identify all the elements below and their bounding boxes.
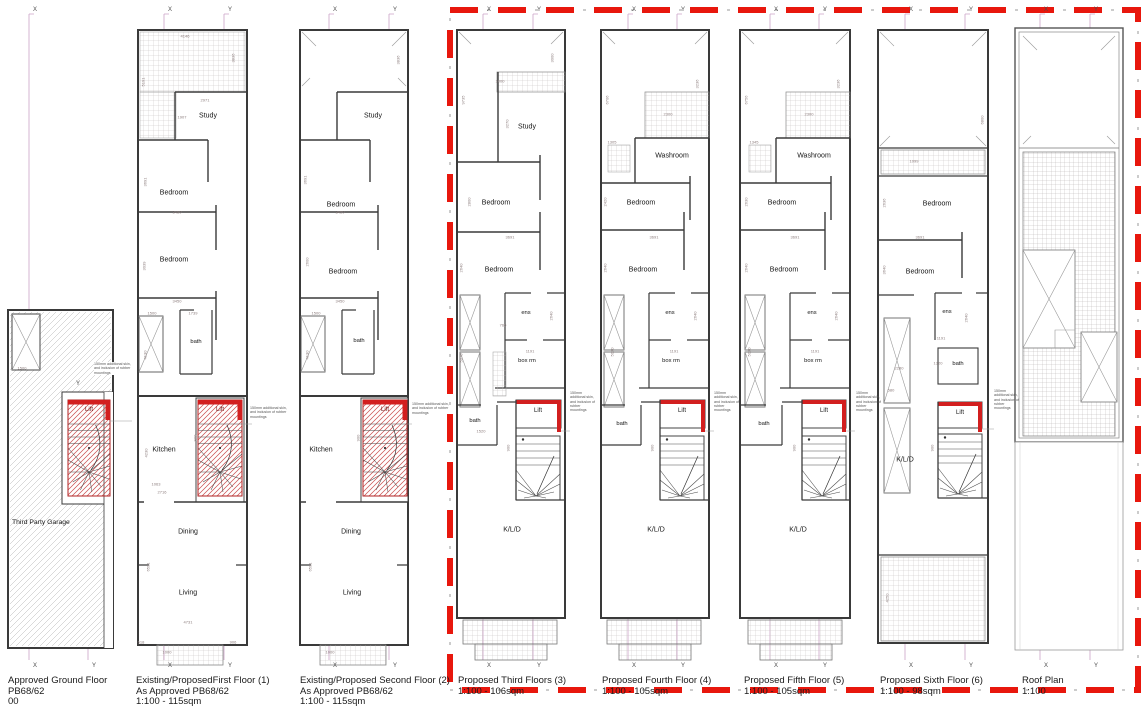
axis-label-x: X: [909, 663, 913, 669]
axis-label-x: X: [1044, 7, 1048, 13]
room-label-bath: bath: [190, 339, 201, 345]
room-label-lift: Lift: [956, 410, 964, 416]
room-label-kld: K/L/D: [896, 457, 914, 464]
plan-fourth-floor: [601, 30, 714, 660]
axis-label-x: X: [632, 7, 636, 13]
room-label-lift: Lift: [85, 407, 93, 413]
room-label-washroom: Washroom: [655, 153, 689, 160]
roof-terrace-hatch: [881, 557, 985, 641]
room-label-bedroom: Bedroom: [923, 201, 951, 208]
lift-box: [660, 400, 705, 428]
skin-note: 150mm additional skin, and inclusion of …: [250, 406, 290, 419]
caption-sixth-floor: Proposed Sixth Floor (6) 1:100 - 98sqm: [880, 676, 983, 697]
dim-label: 2640: [964, 314, 969, 323]
dim-label: 1345: [750, 140, 759, 145]
room-label-bedroom: Bedroom: [327, 202, 355, 209]
axis-label-y: Y: [228, 663, 232, 669]
caption-fourth-floor: Proposed Fourth Floor (4) 1:100 - 105sqm: [602, 676, 711, 697]
dim-label: 6800: [980, 116, 985, 125]
caption-line: 1:100 - 115sqm: [136, 697, 270, 708]
skin-note: 150mm additional skin, and inclusion of …: [714, 391, 741, 413]
dim-label: 1063: [152, 482, 161, 487]
axis-label-y: Y: [969, 7, 973, 13]
skin-note: 150mm additional skin, and inclusion of …: [412, 402, 452, 415]
axis-label-y: Y: [823, 7, 827, 13]
plan-ground-floor: [8, 310, 132, 648]
balcony-hatch: [748, 620, 842, 644]
axis-label-y: Y: [537, 663, 541, 669]
lift-red-wall: [660, 400, 705, 404]
room-label-lift: Lift: [534, 408, 542, 414]
stair: [802, 436, 846, 500]
dim-label: 900: [193, 435, 198, 442]
skin-note: 150mm additional skin, and inclusion of …: [856, 391, 883, 413]
stair: [938, 434, 982, 498]
dim-label: 3039: [142, 262, 147, 271]
room-label-bedroom: Bedroom: [160, 257, 188, 264]
plan-fifth-floor: [740, 30, 855, 660]
lift-red-wall: [68, 400, 110, 405]
axis-label-x: X: [774, 663, 778, 669]
room-label-dining: Dining: [341, 529, 361, 536]
terrace-hatch: [786, 92, 850, 138]
room-label-box-rm: box rm: [660, 358, 682, 364]
skin-note: 150mm additional skin, and inclusion of …: [994, 389, 1021, 411]
dim-label: 3450: [336, 210, 345, 215]
axis-label-y: Y: [1094, 663, 1098, 669]
axis-label-y: Y: [1094, 7, 1098, 13]
caption-line: 1:100 - 106sqm: [458, 687, 566, 698]
room-label-kitchen: Kitchen: [309, 447, 332, 454]
room-label-study: Study: [199, 113, 217, 120]
balcony-hatch: [463, 620, 557, 644]
room-label-bedroom: Bedroom: [482, 200, 510, 207]
dim-label: 3691: [143, 178, 148, 187]
dim-label: 2640: [693, 312, 698, 321]
dim-label: 618: [138, 640, 145, 645]
terrace-hatch: [497, 72, 565, 92]
room-label-box-rm: box rm: [802, 358, 824, 364]
room-label-bath: bath: [952, 361, 963, 367]
dim-label: 3450: [173, 299, 182, 304]
axis-label-x: X: [1044, 663, 1048, 669]
room-label-lift: Lift: [381, 407, 389, 413]
dim-label: 6591: [308, 563, 313, 572]
axis-label-y: Y: [537, 7, 541, 13]
room-label-garage: Third Party Garage: [12, 519, 70, 526]
dim-label: 3691: [916, 235, 925, 240]
lift-red-wall: [516, 400, 561, 404]
room-label-bath: bath: [469, 418, 480, 424]
skin-note: 150mm additional skin, and inclusion of …: [570, 391, 597, 413]
terrace-hatch: [140, 32, 245, 92]
room-label-ens: ens: [942, 309, 951, 315]
dim-label: 1305: [608, 140, 617, 145]
axis-label-x: X: [774, 7, 778, 13]
dim-label: 1191: [811, 349, 820, 354]
dim-label: 5070: [747, 348, 752, 357]
caption-line: 1:100 - 105sqm: [744, 687, 844, 698]
axis-label-x: X: [33, 7, 37, 13]
skin-note: 150mm additional skin, and inclusion of …: [94, 362, 134, 375]
room-label-kitchen: Kitchen: [152, 447, 175, 454]
caption-second-floor: Existing/Proposed Second Floor (2) As Ap…: [300, 676, 450, 708]
lift-box: [802, 400, 846, 428]
dim-label: 1000: [163, 650, 172, 655]
dim-label: 2971: [201, 98, 210, 103]
room-label-bedroom: Bedroom: [627, 200, 655, 207]
room-label-lift: Lift: [820, 408, 828, 414]
room-label-lift: Lift: [678, 408, 686, 414]
room-label-lift: Lift: [216, 407, 224, 413]
room-label-bedroom: Bedroom: [629, 267, 657, 274]
caption-line: 1:100 - 105sqm: [602, 687, 711, 698]
plan-roof: [1015, 28, 1123, 650]
room-label-ens: ens: [665, 310, 674, 316]
dim-label: 4130: [143, 351, 148, 360]
dim-label: 5070: [610, 348, 615, 357]
lift-red-wall: [198, 400, 242, 405]
dim-label: 1500: [312, 311, 321, 316]
lift-red-wall: [363, 400, 407, 405]
dim-label: 1500: [18, 366, 27, 371]
room-label-kld: K/L/D: [647, 527, 665, 534]
room-label-ens: ens: [807, 310, 816, 316]
dim-label: 4731: [184, 620, 193, 625]
dim-label: 9735: [461, 96, 466, 105]
dim-label: 2640: [549, 312, 554, 321]
dim-label: 3450: [336, 299, 345, 304]
balcony-hatch: [320, 645, 386, 665]
axis-label-y: Y: [823, 663, 827, 669]
axis-label-y: Y: [92, 663, 96, 669]
axis-label-y: Y: [228, 7, 232, 13]
caption-line: PB68/62: [8, 687, 107, 698]
stair: [660, 436, 704, 500]
dim-label: 2636: [882, 199, 887, 208]
terrace-hatch: [881, 150, 985, 174]
dim-label: 2640: [834, 312, 839, 321]
dim-label: 2280: [895, 366, 904, 371]
room-label-bath: bath: [353, 338, 364, 344]
dim-label: 3640: [882, 266, 887, 275]
dim-label: 6591: [146, 563, 151, 572]
dim-label: 1320: [934, 361, 943, 366]
caption-line: 1:100 - 98sqm: [880, 687, 983, 698]
dim-label: 900: [356, 435, 361, 442]
plan-linework: [0, 0, 1147, 720]
axis-label-x: X: [909, 7, 913, 13]
dim-label: 580: [888, 388, 895, 393]
room-label-bedroom: Bedroom: [160, 190, 188, 197]
lift-box: [516, 400, 561, 428]
terrace-hatch: [645, 92, 709, 138]
axis-label-x: X: [487, 663, 491, 669]
dim-label: 3836: [396, 56, 401, 65]
axis-label-y: Y: [393, 663, 397, 669]
axis-label-x: X: [168, 7, 172, 13]
dim-label: 3450: [173, 210, 182, 215]
dim-label: 2630: [744, 198, 749, 207]
room-label-bedroom: Bedroom: [329, 269, 357, 276]
axis-label-y: Y: [393, 7, 397, 13]
dim-label: 3691: [791, 235, 800, 240]
dim-label: 2800: [467, 198, 472, 207]
dim-label: 4130: [305, 351, 310, 360]
plan-second-floor: [300, 30, 412, 665]
dim-label: 2716: [158, 490, 167, 495]
dim-label: 1907: [178, 115, 187, 120]
axis-label-x: X: [632, 663, 636, 669]
room-label-bedroom: Bedroom: [906, 269, 934, 276]
dim-label: 6706: [605, 96, 610, 105]
dim-label: 900: [930, 445, 935, 452]
dim-label: 2300: [664, 112, 673, 117]
dim-label: 906: [230, 640, 237, 645]
dim-label: 2640: [603, 264, 608, 273]
dim-label: 900: [792, 445, 797, 452]
dim-label: 2420: [603, 198, 608, 207]
dim-label: 3000: [550, 54, 555, 63]
caption-ground-floor: Approved Ground Floor PB68/62 00: [8, 676, 107, 708]
room-label-kld: K/L/D: [503, 527, 521, 534]
axis-label-x: X: [487, 7, 491, 13]
caption-third-floor: Proposed Third Floors (3) 1:100 - 106sqm: [458, 676, 566, 697]
axis-label-y: Y: [76, 381, 80, 387]
dim-label: 2300: [805, 112, 814, 117]
room-label-study: Study: [364, 113, 382, 120]
dim-label: 1500: [148, 311, 157, 316]
dim-label: 3270: [505, 120, 510, 129]
dim-label: 4230: [144, 449, 149, 458]
room-label-study: Study: [518, 124, 536, 131]
dim-label: 2640: [744, 264, 749, 273]
dim-label: 3236: [695, 80, 700, 89]
dim-label: 1520: [477, 429, 486, 434]
room-label-bath: bath: [616, 421, 627, 427]
dim-label: 3691: [650, 235, 659, 240]
floorplan-sheet: Approved Ground Floor PB68/62 00 Existin…: [0, 0, 1147, 720]
caption-roof-plan: Roof Plan 1:100: [1022, 676, 1064, 697]
room-label-bedroom: Bedroom: [768, 200, 796, 207]
dim-label: 3691: [506, 235, 515, 240]
dim-label: 1000: [326, 650, 335, 655]
dim-label: 1191: [526, 349, 535, 354]
dim-label: 3836: [231, 54, 236, 63]
dim-label: 1739: [189, 311, 198, 316]
room-label-bath: bath: [758, 421, 769, 427]
axis-label-y: Y: [681, 7, 685, 13]
dim-label: 3691: [303, 176, 308, 185]
caption-line: 1:100 - 115sqm: [300, 697, 450, 708]
room-label-ens: ens: [521, 310, 530, 316]
dim-label: 2600: [305, 258, 310, 267]
caption-line: 00: [8, 697, 107, 708]
dim-label: 900: [650, 445, 655, 452]
dim-label: 1191: [937, 336, 946, 341]
lift-red-wall: [802, 400, 846, 404]
dim-label: 3236: [836, 80, 841, 89]
caption-line: 1:100: [1022, 687, 1064, 698]
dim-label: 6756: [744, 96, 749, 105]
room-label-living: Living: [343, 590, 361, 597]
room-label-box-rm: box rm: [516, 358, 538, 364]
lift-red-wall: [938, 402, 982, 406]
axis-label-y: Y: [681, 663, 685, 669]
balcony-hatch: [157, 645, 223, 665]
dim-label: 1099: [910, 159, 919, 164]
room-label-bedroom: Bedroom: [770, 267, 798, 274]
dim-label: 4146: [181, 34, 190, 39]
dim-label: 760: [500, 323, 507, 328]
room-label-kld: K/L/D: [789, 527, 807, 534]
dim-label: 5191: [141, 78, 146, 87]
axis-label-x: X: [333, 663, 337, 669]
dim-label: 4250: [885, 594, 890, 603]
room-label-bedroom: Bedroom: [485, 267, 513, 274]
room-label-living: Living: [179, 590, 197, 597]
room-label-washroom: Washroom: [797, 153, 831, 160]
axis-label-x: X: [168, 663, 172, 669]
plan-first-floor: [138, 30, 252, 665]
stair: [516, 436, 560, 500]
room-label-dining: Dining: [178, 529, 198, 536]
axis-label-x: X: [333, 7, 337, 13]
dim-label: 900: [506, 445, 511, 452]
dim-label: 5070: [459, 354, 464, 363]
axis-label-x: X: [33, 663, 37, 669]
balcony-hatch: [607, 620, 701, 644]
dim-label: 2640: [459, 264, 464, 273]
caption-fifth-floor: Proposed Fifth Floor (5) 1:100 - 105sqm: [744, 676, 844, 697]
axis-label-y: Y: [969, 663, 973, 669]
dim-label: 1191: [670, 349, 679, 354]
caption-first-floor: Existing/ProposedFirst Floor (1) As Appr…: [136, 676, 270, 708]
plan-third-floor: [457, 30, 570, 660]
dim-label: 1000: [496, 79, 505, 84]
